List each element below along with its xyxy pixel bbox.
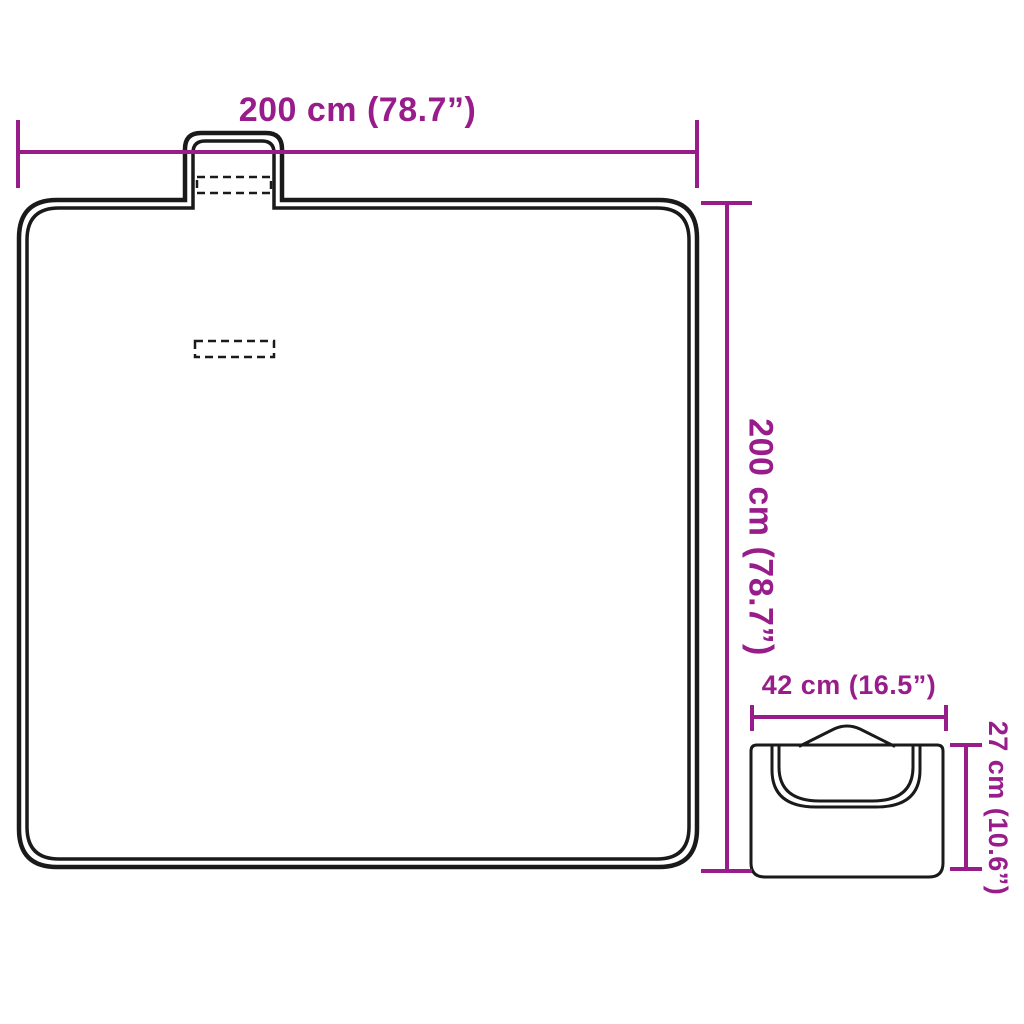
folded-height-label: 27 cm (10.6”): [982, 721, 1012, 896]
unfolded-blanket-outer-outline: [19, 133, 697, 867]
blanket-face-stitching-dashed-rect: [195, 341, 274, 357]
product-dimension-diagram: 200 cm (78.7”) 200 cm (78.7”) 42 cm (16.…: [0, 0, 1024, 1024]
handle-strap-stitching-dashed-rect: [197, 177, 271, 193]
unfolded-width-dimension-line: [18, 120, 697, 188]
folded-bag-handle-opening-outer: [772, 746, 920, 807]
folded-bag-handle: [800, 726, 894, 746]
folded-bag-handle-opening-inner: [779, 746, 913, 801]
diagram-artwork: [0, 0, 1024, 1024]
unfolded-width-label: 200 cm (78.7”): [18, 92, 697, 129]
folded-width-label: 42 cm (16.5”): [752, 671, 946, 701]
folded-height-dimension-line: [950, 745, 982, 869]
unfolded-height-label: 200 cm (78.7”): [741, 418, 778, 656]
unfolded-blanket-inner-outline: [27, 141, 689, 859]
